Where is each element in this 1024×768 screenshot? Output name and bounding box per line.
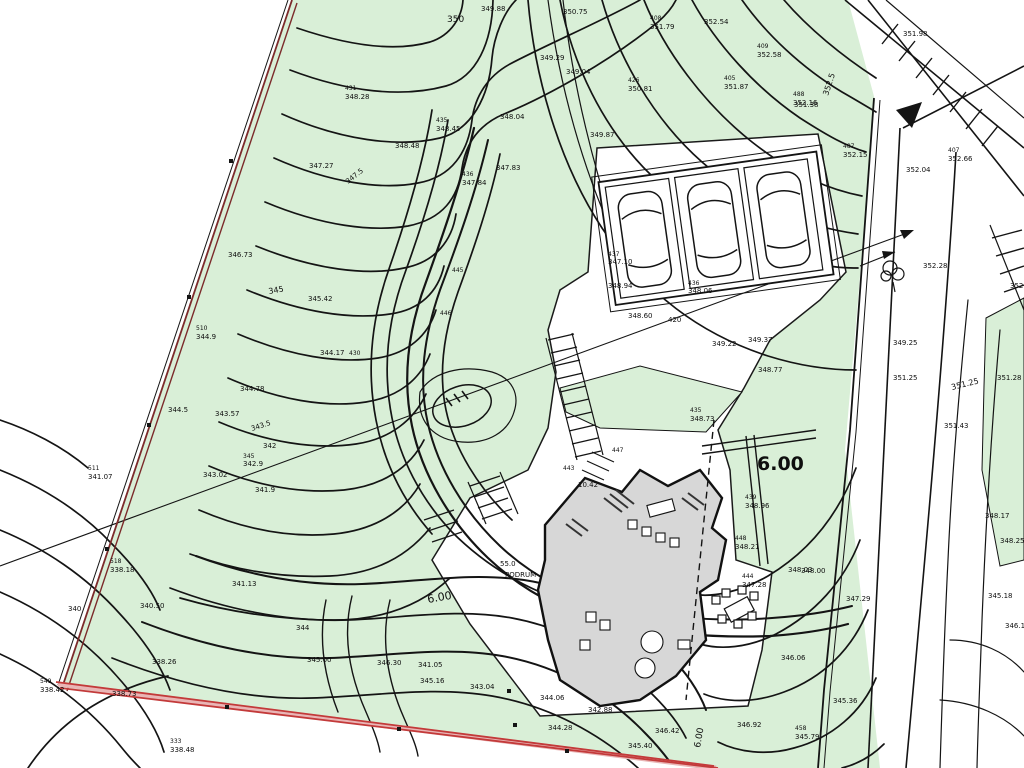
elevation-label: 352.16	[793, 99, 818, 107]
elevation-label: 349.29	[540, 54, 565, 62]
elevation-label: 349.04	[566, 68, 591, 76]
elevation-label: 352.54	[704, 18, 729, 26]
elevation-label: 346.10	[1005, 622, 1024, 630]
elevation-label: 350.81	[628, 85, 653, 93]
elevation-label: 342.9	[243, 460, 263, 468]
elevation-label: 340	[68, 605, 81, 613]
elevation-label: 344.06	[540, 694, 565, 702]
elevation-label: 349.37	[748, 336, 773, 344]
elevation-label: 351.79	[650, 23, 675, 31]
elevation-label: 348.45	[436, 125, 461, 133]
elevation-label: 345.36	[833, 697, 858, 705]
elevation-label: 408	[650, 15, 662, 22]
elevation-label: 351.43	[944, 422, 969, 430]
elevation-label: 348.48	[395, 142, 420, 150]
elevation-label: 437	[608, 251, 620, 258]
elevation-label: 342.88	[588, 706, 613, 714]
elevation-label: 345.42	[308, 295, 333, 303]
elevation-label: 518	[110, 558, 122, 565]
elevation-label: 338.48	[170, 746, 195, 754]
elevation-label: 341.13	[232, 580, 257, 588]
elevation-label: 346.42	[655, 727, 680, 735]
elevation-label: 345	[243, 453, 255, 460]
elevation-label: 346.73	[228, 251, 253, 259]
junction-mark	[896, 102, 922, 128]
elevation-label: 346.92	[737, 721, 762, 729]
elevation-label: 341.05	[418, 661, 443, 669]
elevation-label: 10.42	[578, 481, 598, 489]
elevation-label: 430	[349, 350, 361, 357]
elevation-label: 445	[452, 267, 464, 274]
elevation-label: 348.60	[628, 312, 653, 320]
elevation-label: 349.88	[481, 5, 506, 13]
elevation-label: 347.27	[309, 162, 334, 170]
elevation-label: 343.02	[203, 471, 228, 479]
elevation-label: 350.75	[563, 8, 588, 16]
elevation-label: 347.84	[462, 179, 487, 187]
elevation-label: 435	[436, 117, 448, 124]
elevation-label: 344.28	[548, 724, 573, 732]
elevation-label: 345.79	[795, 733, 820, 741]
elevation-label: 344.5	[168, 406, 188, 414]
elevation-label: 348.94	[608, 282, 633, 290]
elevation-label: 348.77	[758, 366, 783, 374]
elevation-label: 444	[742, 573, 754, 580]
elevation-label: 344.17	[320, 349, 345, 357]
elevation-label: 409	[757, 43, 769, 50]
elevation-label: 347.28	[742, 581, 767, 589]
elevation-label: 348.06	[688, 287, 713, 295]
elevation-label: 351.98	[903, 30, 928, 38]
arrowhead-icon	[900, 230, 914, 239]
elevation-label: 345.18	[988, 592, 1013, 600]
elevation-label: 348.96	[745, 502, 770, 510]
elevation-label: 352.58	[757, 51, 782, 59]
elevation-label: 6.00	[757, 453, 804, 475]
elevation-label: 351.25	[950, 376, 979, 392]
elevation-label: 345.40	[628, 742, 653, 750]
elevation-label: 341.9	[255, 486, 275, 494]
elevation-label: 443	[563, 465, 575, 472]
elevation-label: 435	[690, 407, 702, 414]
elevation-label: 352.15	[843, 151, 868, 159]
elevation-label: 348.28	[345, 93, 370, 101]
elevation-label: 439	[745, 494, 757, 501]
elevation-label: 436	[462, 171, 474, 178]
elevation-label: 338.26	[152, 658, 177, 666]
site-plan-page: 350349.88349.29349.04350.75408351.79352.…	[0, 0, 1024, 768]
elevation-label: 342	[263, 442, 276, 450]
elevation-label: 351.28	[997, 374, 1022, 382]
elevation-label: 426	[628, 77, 640, 84]
elevation-label: 448	[735, 535, 747, 542]
elevation-label: 338.73	[112, 690, 137, 698]
elevation-label: 510	[196, 325, 208, 332]
elevation-label: 351.87	[724, 83, 749, 91]
elevation-label: 347.10	[608, 258, 633, 266]
elevation-label: 488	[793, 91, 805, 98]
elevation-label: 352.5	[1010, 282, 1024, 290]
elevation-label: 345.16	[420, 677, 445, 685]
elevation-label: 487	[843, 143, 855, 150]
elevation-label: 348.21	[735, 543, 760, 551]
elevation-label: 345.00	[307, 656, 332, 664]
elevation-label: 349.22	[712, 340, 737, 348]
elevation-label: 352.04	[906, 166, 931, 174]
elevation-label: 349.25	[893, 339, 918, 347]
elevation-label: 344	[296, 624, 310, 632]
site-plan-svg: 350349.88349.29349.04350.75408351.79352.…	[0, 0, 1024, 768]
elevation-label: 431	[345, 85, 357, 92]
elevation-label: 348.73	[690, 415, 715, 423]
elevation-label: 348.25	[1000, 537, 1024, 545]
elevation-label: 352.28	[923, 262, 948, 270]
elevation-label: 346.30	[377, 659, 402, 667]
elevation-label: 447	[612, 447, 624, 454]
elevation-label: 343.57	[215, 410, 240, 418]
basement-label: PODRUM	[505, 571, 536, 579]
elevation-label: 436	[688, 280, 700, 287]
elevation-label: 346.06	[781, 654, 806, 662]
elevation-label: 511	[88, 465, 100, 472]
elevation-label: 351.25	[893, 374, 918, 382]
elevation-label: 458	[795, 725, 807, 732]
elevation-label: 349.87	[590, 131, 615, 139]
elevation-label: 348.17	[985, 512, 1010, 520]
elevation-label: 348.00	[801, 567, 826, 575]
elevation-label: 338.42	[40, 686, 65, 694]
elevation-label: 343.04	[470, 683, 495, 691]
elevation-label: 407	[948, 147, 960, 154]
elevation-label: 333	[170, 738, 182, 745]
elevation-label: 549	[40, 678, 52, 685]
elevation-label: 344.78	[240, 385, 265, 393]
elevation-label: 338.18	[110, 566, 135, 574]
elevation-label: 341.07	[88, 473, 113, 481]
elevation-label: 340.50	[140, 602, 165, 610]
elevation-label: 347.29	[846, 595, 871, 603]
elevation-label: 347.83	[496, 164, 521, 172]
elevation-label: 350	[447, 15, 464, 25]
elevation-label: 352.66	[948, 155, 973, 163]
elevation-label: 420	[668, 316, 681, 324]
elevation-label: 348.04	[500, 113, 525, 121]
elevation-label: 344.9	[196, 333, 216, 341]
elevation-label: 446	[440, 310, 452, 317]
elevation-label: 55.0	[500, 560, 516, 568]
elevation-label: 405	[724, 75, 736, 82]
